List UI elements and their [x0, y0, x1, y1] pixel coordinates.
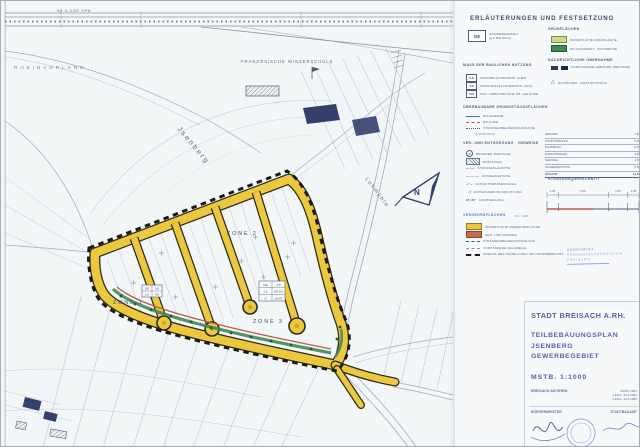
- table-row: GEHWEG1,50: [545, 132, 640, 139]
- legend-row: BAULINIE: [466, 120, 498, 124]
- plan-sheet: 98 0-03E 0P8: [0, 0, 640, 447]
- legend-row: △ DACHFORM · FIRSTRICHTUNG: [551, 80, 607, 85]
- rail-note: 98 0-03E 0P8: [57, 8, 91, 13]
- roof-icon: △: [551, 80, 555, 85]
- label-rheinvorland: RHEINVORLAND: [14, 65, 87, 70]
- legend-row: →| ENTWÄSSERUNGSRICHTUNG: [466, 190, 522, 194]
- row-label: GRENZE DES RÄUMLICHEN GELTUNGSBEREICHS: [483, 253, 575, 257]
- gfz-symbol: 1,6: [466, 82, 477, 90]
- baulinie-line-icon: [466, 122, 480, 123]
- lamp-line-icon: —·—: [466, 166, 474, 170]
- legend-row: GH MAX. GEBÄUDEHÖHE ÜB. GELÄNDE: [466, 90, 538, 98]
- title-block: STADT BREISACH A.RH. TEILBEBAUUNGSPLAN J…: [525, 301, 640, 447]
- svg-text:15-25°: 15-25°: [274, 296, 283, 300]
- row-label: STRASSENLEUCHTE: [477, 166, 510, 170]
- gh-symbol: GH: [466, 90, 477, 98]
- svg-text:1,6: 1,6: [263, 290, 267, 294]
- roof-pitch-value: 15°-25°: [466, 198, 476, 202]
- svg-text:N: N: [414, 188, 420, 197]
- row-label: VORHANDENE FELDWEGE: [483, 246, 526, 250]
- grz-symbol: 0,8: [466, 74, 477, 82]
- row-label: GEH- UND RADWEG: [485, 233, 517, 237]
- plan-place: BREISACH AM RHEIN: [531, 389, 567, 393]
- svg-text:GH: GH: [155, 293, 160, 297]
- plan-revision-2: 2.ERG. 10.8.1985: [612, 397, 637, 401]
- legend-row: 15°-25° DACHNEIGUNG: [466, 198, 504, 202]
- legend-row: — — — WASSERLEITUNG: [466, 174, 510, 178]
- plan-title-line3: GEWERBEGEBIET: [531, 352, 640, 363]
- legend-header-nachrichtlich: NACHRICHTLICHE ÜBERNAHME: [548, 58, 613, 62]
- signatures: [525, 415, 640, 447]
- legend-row: VORHANDENE GEBÄUDE (BESTAND): [551, 66, 640, 70]
- stamp-underline: [567, 263, 609, 265]
- legend-header-verkehr: VERKEHRSFLÄCHEN: [463, 213, 505, 217]
- table-row: PARKSTREIFEN2,50: [545, 152, 640, 159]
- svg-text:1,6: 1,6: [145, 293, 150, 297]
- existing-building-swatch-2: [561, 66, 568, 70]
- signature-labels: BÜRGERMEISTER STADTBAUAMT: [531, 410, 637, 414]
- street-cross-section: 1,50 6,50 2,50 1,50: [545, 183, 640, 217]
- plan-dates: MÄRZ 1981 1.ERG. 30.4.1984 2.ERG. 10.8.1…: [612, 389, 637, 402]
- legend-row: –··– SCHMUTZWASSERKANAL: [466, 182, 517, 186]
- nutzungsschablone-small: GE 0,8 1,6 GH: [142, 285, 162, 297]
- legend-row: GEH- UND RADWEG: [466, 231, 517, 238]
- svg-text:GE: GE: [145, 287, 149, 291]
- legend-header-nutzung: MASS DER BAULICHEN NUTZUNG: [463, 63, 532, 67]
- ge-label-2: (§ 8 BAUNVO): [489, 36, 518, 40]
- plan-title-line1: TEILBEBAUUNGSPLAN: [531, 331, 640, 342]
- row-label: BAUGRENZE: [483, 114, 504, 118]
- svg-text:0,8: 0,8: [155, 287, 160, 291]
- road-yellow-swatch: [466, 223, 482, 230]
- legend-row: BÖSCHUNG: [466, 158, 502, 165]
- hatched-building: [246, 86, 279, 96]
- approval-stamp: GENEHMIGT REGIERUNGSPRÄSIDIUM FREIBURG: [567, 246, 637, 265]
- row-label: DACHNEIGUNG: [479, 198, 504, 202]
- planting-swatch: [551, 45, 567, 52]
- scan-edge-line: [5, 1, 6, 447]
- legend-header-bauweise: ÜBERBAUBARE GRUNDSTÜCKSFLÄCHEN: [463, 105, 548, 109]
- legend-header-gruen: GRÜNFLÄCHEN: [548, 27, 580, 31]
- embankment-hatch-icon: [466, 158, 480, 165]
- svg-text:GE: GE: [263, 283, 267, 287]
- svg-text:1,50: 1,50: [631, 189, 637, 193]
- legend-row: STRASSENBEGRENZUNGSLINIE: [466, 126, 535, 130]
- legend-row: GRENZE DES RÄUMLICHEN GELTUNGSBEREICHS: [466, 253, 575, 257]
- row-label: ÖFFENTLICHE GRÜNFLÄCHE: [570, 38, 617, 42]
- legend-panel: ERLÄUTERUNGEN UND FESTSETZUNG GE GEWERBE…: [454, 1, 640, 447]
- legend-note-baunvo: (§ 23 BAUNVO): [475, 132, 495, 136]
- mayor-label: BÜRGERMEISTER: [531, 410, 562, 414]
- row-label: PFLANZGEBOT · BAUMREIHE: [570, 47, 617, 51]
- legend-row: 0,8 GRUNDFLÄCHENZAHL (GRZ): [466, 74, 526, 82]
- row-label: BRUNNEN (BESTAND): [476, 152, 511, 156]
- row-label: BÖSCHUNG: [483, 160, 502, 164]
- strassenbegrenzung-line-icon: [466, 128, 480, 129]
- width-table: GEHWEG1,50 GRÜNSTREIFEN2,00 FAHRBAHN6,50…: [545, 132, 640, 178]
- table-row: FAHRBAHN6,50: [545, 145, 640, 152]
- legend-row: ÖFFENTLICHE VERKEHRSFLÄCHE: [466, 223, 540, 230]
- row-label: ÖFFENTLICHE VERKEHRSFLÄCHE: [485, 225, 540, 229]
- label-zone2: ZONE 2: [227, 231, 258, 237]
- svg-text:0,8: 0,8: [276, 283, 280, 287]
- ge-symbol: GE: [468, 30, 486, 42]
- site-plan-map: 98 0-03E 0P8: [1, 1, 454, 447]
- legend-row: 1,6 GESCHOSSFLÄCHENZAHL (GFZ): [466, 82, 533, 90]
- plan-title: TEILBEBAUUNGSPLAN JSENBERG GEWERBEGEBIET: [531, 331, 640, 363]
- field-path-line-icon: [466, 248, 480, 249]
- row-label: STRASSENBEGRENZUNGSLINIE: [483, 126, 535, 130]
- plan-title-line2: JSENBERG: [531, 342, 640, 353]
- legend-row: —·— STRASSENLEUCHTE: [466, 166, 511, 170]
- legend-scale-note: M 1 : 1000: [515, 214, 528, 218]
- plan-city: STADT BREISACH A.RH.: [531, 311, 640, 320]
- row-label: DACHFORM · FIRSTRICHTUNG: [558, 81, 608, 85]
- table-row: GEHWEG1,50: [545, 158, 640, 165]
- legend-row: VORHANDENE FELDWEGE: [466, 246, 526, 250]
- green-area-swatch: [551, 36, 567, 43]
- baugrenze-line-icon: [466, 116, 480, 117]
- row-label: MAX. GEBÄUDEHÖHE ÜB. GELÄNDE: [480, 92, 538, 96]
- legend-header-querschnitt: STRASSENQUERSCHNITT: [548, 177, 600, 181]
- label-school: FRANZÖSISCHE WINZERSCHULE: [241, 59, 333, 64]
- legend-row: BAUGRENZE: [466, 114, 504, 118]
- row-label: VORHANDENE GEBÄUDE (BESTAND): [571, 66, 640, 70]
- row-label: ENTWÄSSERUNGSRICHTUNG: [474, 190, 522, 194]
- legend-header-versorgung: VER- UND ENTSORGUNG · HINWEISE: [463, 141, 539, 145]
- svg-text:1,50: 1,50: [550, 189, 556, 193]
- well-icon: B: [466, 150, 473, 157]
- water-line-icon: — — —: [466, 174, 479, 178]
- existing-building-swatch-1: [551, 66, 558, 70]
- table-row: GRÜNSTREIFEN2,00: [545, 139, 640, 146]
- footpath-red-swatch: [466, 231, 482, 238]
- road-limit-line-icon: [466, 241, 480, 242]
- office-signature: [603, 423, 640, 431]
- plan-scale: MSTB. 1:1000: [531, 374, 640, 381]
- svg-text:GH 9,0: GH 9,0: [274, 290, 284, 294]
- row-label: GESCHOSSFLÄCHENZAHL (GFZ): [480, 84, 533, 88]
- sewer-line-icon: –··–: [466, 182, 472, 186]
- row-label: STRASSENBEGRENZUNGSLINIE: [483, 239, 535, 243]
- building-office-label: STADTBAUAMT: [610, 410, 637, 414]
- label-zone3: ZONE 3: [253, 319, 284, 325]
- legend-row: B BRUNNEN (BESTAND): [466, 150, 511, 157]
- legend-row: PFLANZGEBOT · BAUMREIHE: [551, 45, 617, 52]
- table-row: SICHERHEITSSTR.0,50: [545, 165, 640, 172]
- row-label: BAULINIE: [483, 120, 498, 124]
- row-label: GRUNDFLÄCHENZAHL (GRZ): [480, 76, 526, 80]
- boundary-dash-icon: [466, 254, 480, 256]
- mayor-signature: [533, 422, 563, 431]
- nutzungsschablone-large: GE 0,8 1,6 GH 9,0 O 15-25°: [259, 281, 285, 301]
- drain-arrow-icon: →|: [466, 190, 471, 194]
- legend-row-ge: GE GEWERBEGEBIET (§ 8 BAUNVO): [468, 30, 518, 42]
- svg-text:6,50: 6,50: [580, 189, 586, 193]
- titleblock-hairline: [529, 406, 638, 407]
- label-zone1: ZONE 1: [113, 300, 144, 306]
- legend-row: STRASSENBEGRENZUNGSLINIE: [466, 239, 535, 243]
- legend-title: ERLÄUTERUNGEN UND FESTSETZUNG: [470, 15, 614, 22]
- row-label: WASSERLEITUNG: [482, 174, 511, 178]
- row-label: SCHMUTZWASSERKANAL: [475, 182, 516, 186]
- legend-row: ÖFFENTLICHE GRÜNFLÄCHE: [551, 36, 617, 43]
- stamp-line: FREIBURG: [567, 256, 637, 263]
- plan-meta: BREISACH AM RHEIN MÄRZ 1981 1.ERG. 30.4.…: [531, 389, 637, 402]
- svg-text:2,50: 2,50: [615, 189, 621, 193]
